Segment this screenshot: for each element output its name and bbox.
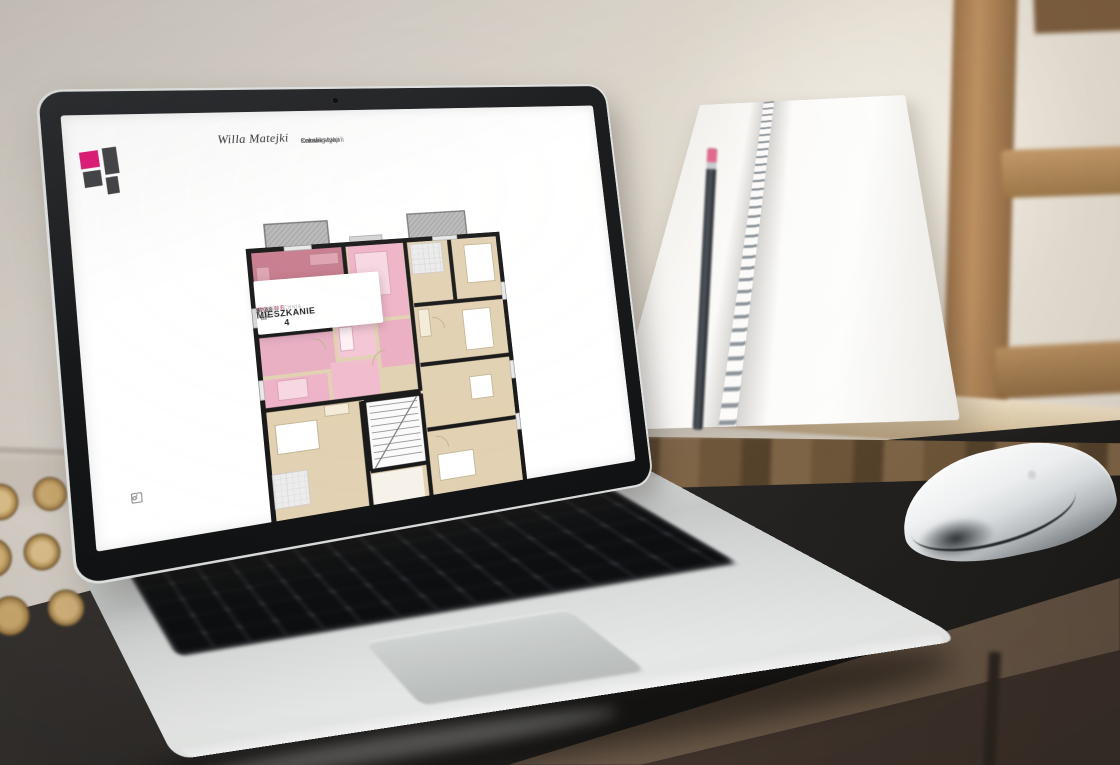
logo-pink-block <box>79 150 100 169</box>
logo-dark-bar <box>102 147 120 175</box>
logo-dark-step <box>106 176 120 194</box>
logo-dark-square <box>83 170 103 188</box>
ladder-shelf-rung <box>1001 146 1120 199</box>
hamburger-menu-icon[interactable] <box>118 319 131 328</box>
tooltip-rooms-value: 2 <box>256 308 260 316</box>
floor-plan[interactable] <box>231 206 538 540</box>
site-logo[interactable] <box>79 146 134 198</box>
nav-link-kontakt[interactable]: Kontakt <box>301 138 326 145</box>
pencil-ferrule <box>706 162 716 170</box>
screen: Willa Matejki O inwestycji Lokalizacja K… <box>60 106 635 552</box>
ladder-shelf-frame <box>1033 0 1120 34</box>
instagram-lens <box>132 495 137 500</box>
webcam <box>332 98 338 103</box>
floor-plan-svg <box>231 206 538 540</box>
ladder-shelf-rung <box>995 340 1120 399</box>
instagram-icon[interactable] <box>131 492 143 504</box>
photo-scene: Willa Matejki O inwestycji Lokalizacja K… <box>0 0 1120 765</box>
